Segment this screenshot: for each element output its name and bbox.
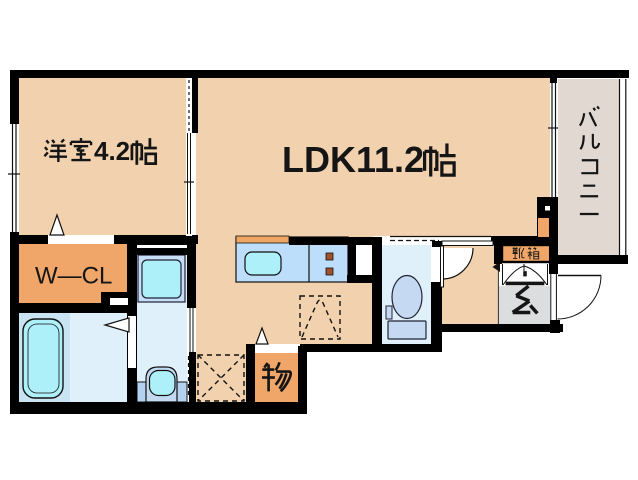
svg-text:W—CL: W—CL <box>35 263 112 290</box>
svg-text:4.2: 4.2 <box>94 136 130 166</box>
svg-text:LDK11.2: LDK11.2 <box>282 139 424 180</box>
